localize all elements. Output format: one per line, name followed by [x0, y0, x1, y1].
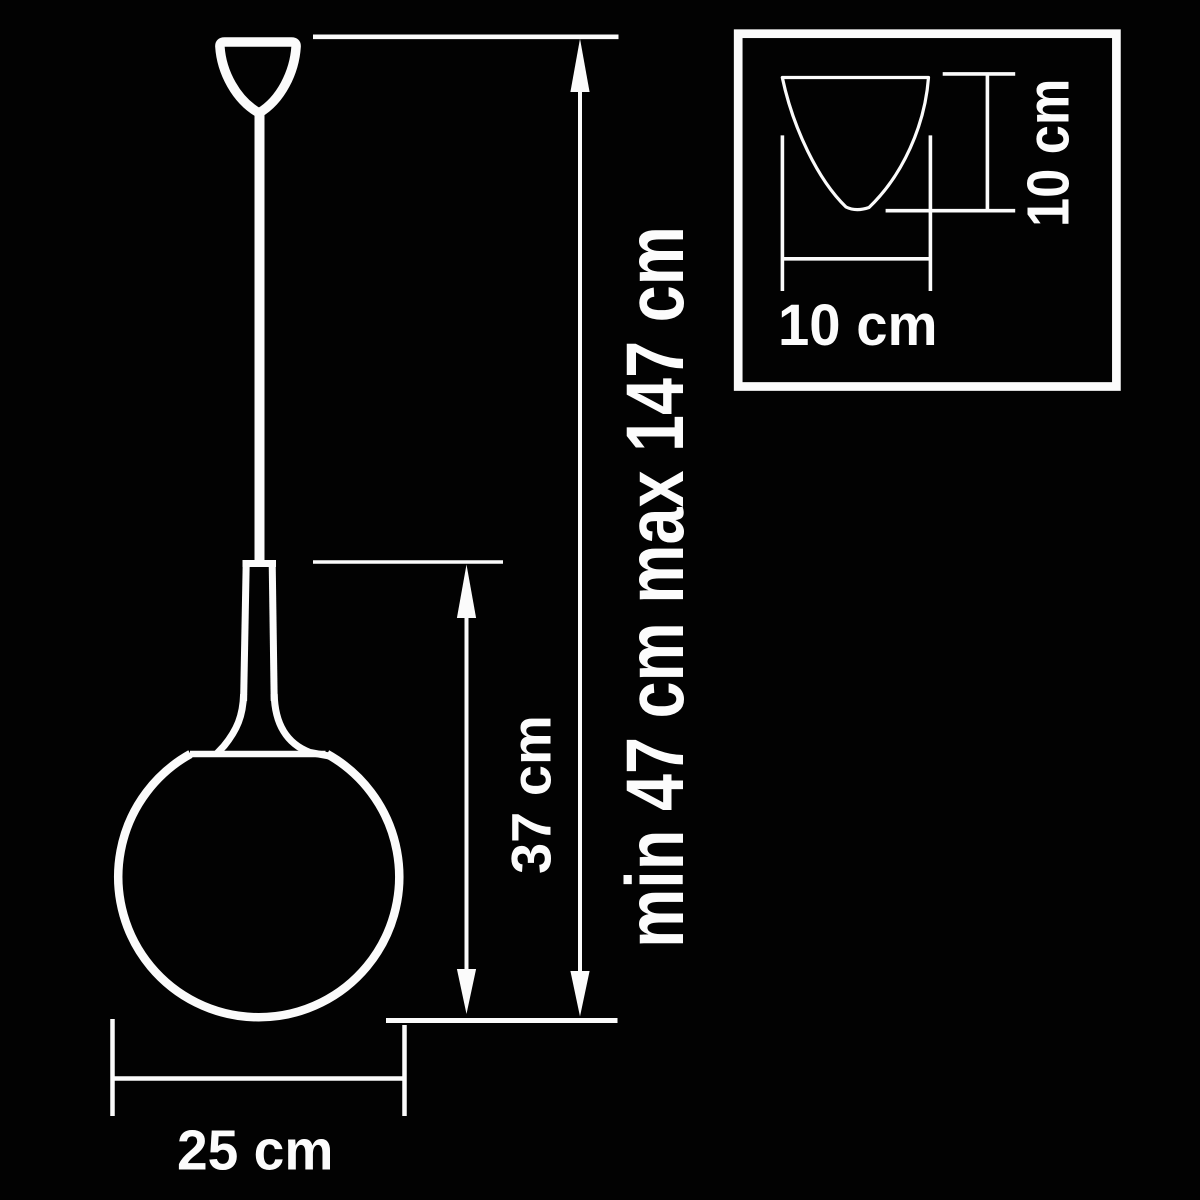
svg-text:10 cm: 10 cm: [778, 293, 937, 358]
svg-text:min 47 cm max 147 cm: min 47 cm max 147 cm: [608, 226, 700, 948]
svg-text:25 cm: 25 cm: [177, 1118, 333, 1182]
svg-text:10 cm: 10 cm: [1014, 79, 1081, 227]
svg-text:37 cm: 37 cm: [500, 715, 563, 874]
